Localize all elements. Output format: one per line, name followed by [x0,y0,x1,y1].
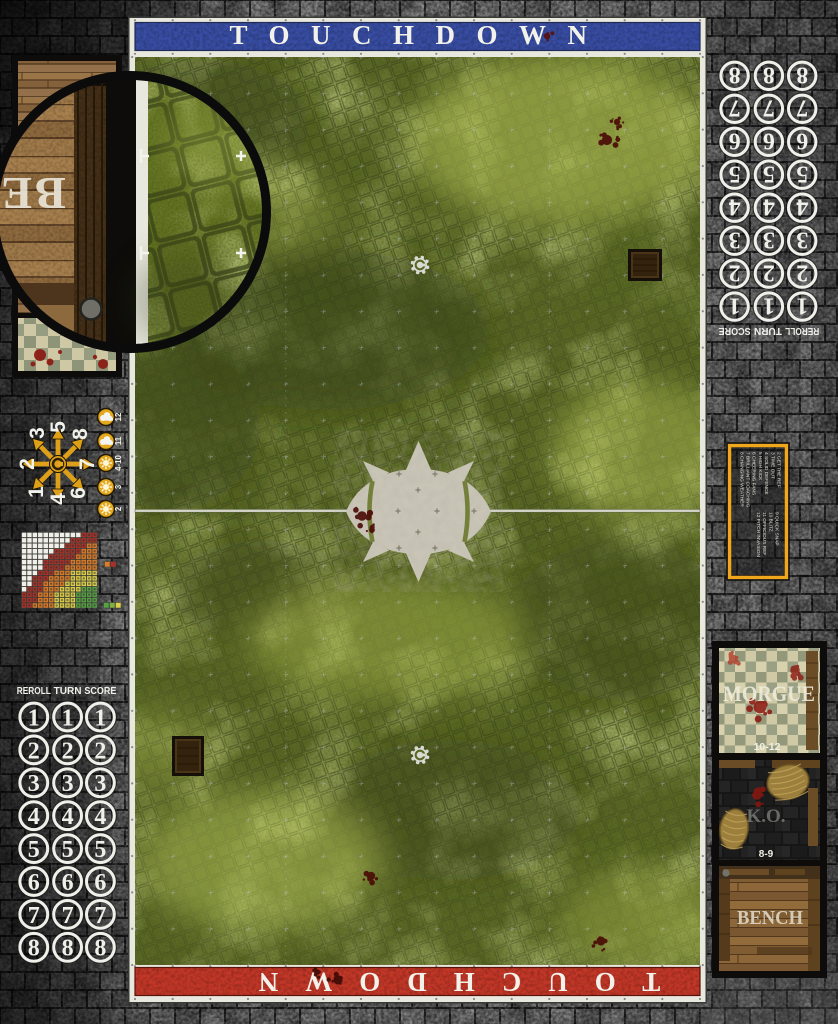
svg-text:6: 6 [94,870,106,896]
svg-text:7: 7 [763,95,775,121]
svg-text:2: 2 [94,738,106,764]
svg-text:2: 2 [114,506,123,511]
svg-text:7: 7 [796,95,808,121]
svg-text:4: 4 [94,804,106,830]
svg-text:6: 6 [763,128,775,154]
svg-text:3: 3 [763,227,775,253]
svg-text:11 OFFICIOUS REF: 11 OFFICIOUS REF [761,512,767,555]
svg-text:4: 4 [729,194,741,220]
svg-text:SCORE: SCORE [84,685,116,697]
svg-text:4: 4 [763,194,775,220]
svg-text:REROLL: REROLL [17,685,51,697]
svg-text:11: 11 [114,436,123,445]
svg-text:1: 1 [94,705,106,731]
svg-text:2: 2 [729,259,741,285]
svg-text:2: 2 [28,738,40,764]
svg-text:5: 5 [62,837,74,863]
svg-text:2: 2 [16,458,39,470]
svg-text:10-12: 10-12 [754,741,781,753]
svg-text:6: 6 [67,487,90,499]
svg-text:5: 5 [763,161,775,187]
svg-text:7: 7 [28,903,40,929]
svg-text:5 HIGH KICK: 5 HIGH KICK [757,452,763,481]
svg-text:4 SOLID DEFENCE: 4 SOLID DEFENCE [763,452,769,495]
svg-text:TURN: TURN [54,685,82,697]
svg-text:K.O.: K.O. [746,806,785,827]
svg-text:8: 8 [69,428,92,440]
svg-text:1: 1 [28,705,40,731]
svg-text:4: 4 [796,194,808,220]
svg-text:2: 2 [763,259,775,285]
svg-text:3: 3 [26,427,49,439]
svg-text:8: 8 [796,62,808,88]
svg-text:6 CHEERING FANS: 6 CHEERING FANS [751,452,757,495]
svg-text:1: 1 [729,292,741,318]
svg-text:3: 3 [94,771,106,797]
svg-text:3: 3 [729,227,741,253]
svg-text:8: 8 [729,62,741,88]
svg-text:5: 5 [94,837,106,863]
svg-text:8: 8 [28,936,40,962]
svg-text:6: 6 [729,128,741,154]
svg-text:REROLL: REROLL [785,325,819,337]
svg-text:7: 7 [62,903,74,929]
svg-text:3: 3 [114,484,123,489]
svg-text:BE: BE [0,168,66,219]
svg-text:8: 8 [763,62,775,88]
svg-text:5: 5 [28,837,40,863]
svg-text:9 QUICK SNAP: 9 QUICK SNAP [774,512,780,546]
svg-text:BENCH: BENCH [737,907,803,929]
svg-text:TURN: TURN [754,325,782,337]
svg-text:12 PITCH INVASION: 12 PITCH INVASION [755,512,761,557]
svg-text:6: 6 [28,870,40,896]
svg-text:1: 1 [25,486,48,498]
svg-text:4: 4 [28,804,40,830]
svg-text:2: 2 [62,738,74,764]
svg-text:5: 5 [796,161,808,187]
svg-text:7 BRILLIANT COACHING: 7 BRILLIANT COACHING [745,452,751,508]
svg-text:4-10: 4-10 [114,455,123,471]
svg-text:8: 8 [62,936,74,962]
svg-text:1: 1 [62,705,74,731]
svg-text:3 TIME OUT: 3 TIME OUT [769,452,775,479]
svg-text:3: 3 [796,227,808,253]
svg-text:4: 4 [62,804,74,830]
svg-text:6: 6 [62,870,74,896]
svg-text:3: 3 [28,771,40,797]
svg-text:7: 7 [76,458,99,470]
svg-text:5: 5 [47,421,70,433]
svg-text:MORGUE: MORGUE [723,681,815,706]
svg-text:1: 1 [796,292,808,318]
svg-text:1: 1 [763,292,775,318]
svg-text:2 GET THE REF: 2 GET THE REF [776,452,782,488]
svg-text:7: 7 [729,95,741,121]
svg-text:12: 12 [114,412,123,421]
svg-text:5: 5 [729,161,741,187]
svg-text:6: 6 [796,128,808,154]
svg-text:8 CHANGING WEATHER: 8 CHANGING WEATHER [738,452,744,507]
svg-text:SCORE: SCORE [719,325,751,337]
svg-text:8: 8 [94,936,106,962]
svg-text:2: 2 [796,259,808,285]
svg-text:8-9: 8-9 [759,849,774,860]
svg-text:7: 7 [94,903,106,929]
svg-text:TOUCHDOWN: TOUCHDOWN [232,967,661,997]
svg-text:3: 3 [62,771,74,797]
svg-text:10 BLITZ: 10 BLITZ [767,512,773,532]
